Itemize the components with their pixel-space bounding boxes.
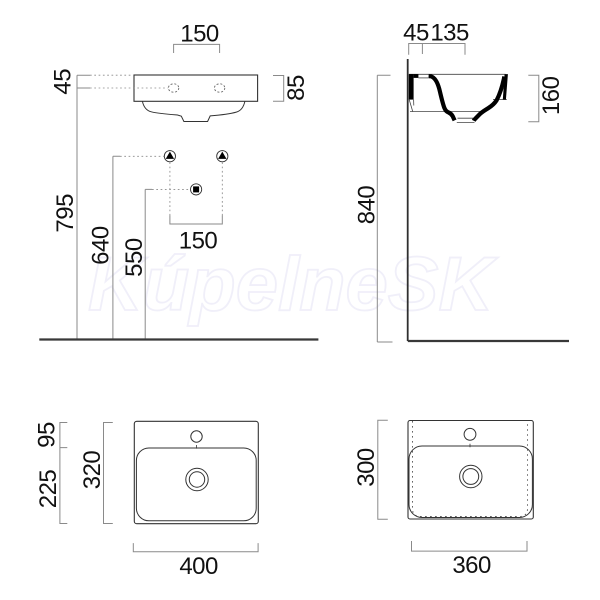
svg-text:795: 795	[52, 194, 79, 233]
svg-text:150: 150	[180, 21, 219, 48]
svg-text:320: 320	[79, 451, 106, 490]
svg-text:300: 300	[353, 448, 380, 487]
svg-text:550: 550	[121, 238, 148, 277]
svg-text:85: 85	[283, 75, 310, 101]
svg-text:640: 640	[88, 226, 115, 265]
svg-text:360: 360	[452, 552, 491, 579]
svg-text:225: 225	[35, 470, 62, 509]
svg-text:840: 840	[353, 186, 380, 225]
svg-text:95: 95	[34, 422, 61, 448]
svg-text:45: 45	[403, 20, 429, 47]
svg-text:135: 135	[430, 20, 469, 47]
svg-text:45: 45	[50, 69, 77, 95]
svg-text:160: 160	[538, 76, 565, 115]
svg-text:150: 150	[179, 228, 218, 255]
svg-text:400: 400	[179, 553, 218, 580]
svg-text:KúpelneSK: KúpelneSK	[88, 242, 498, 327]
